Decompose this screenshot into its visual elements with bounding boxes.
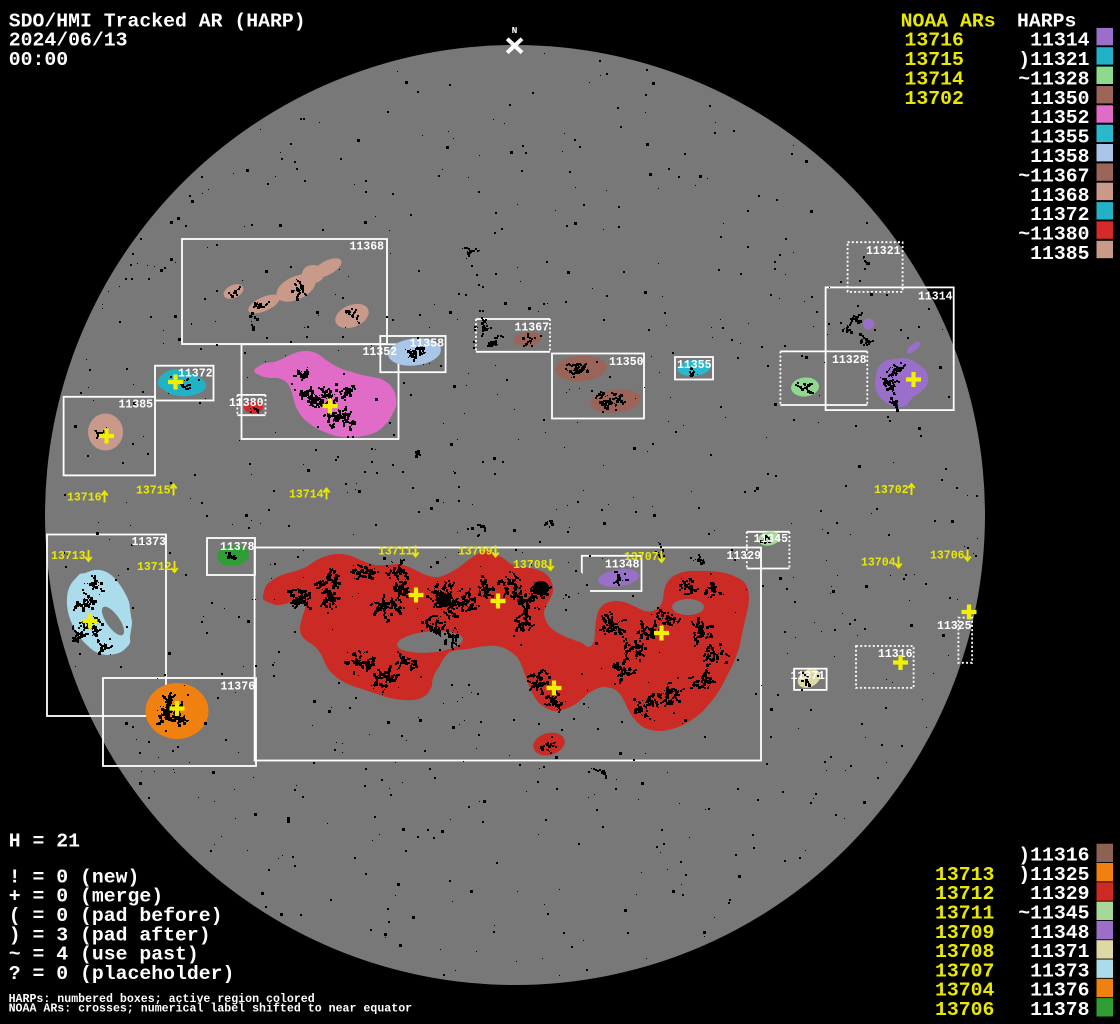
svg-text:13714: 13714: [289, 489, 324, 502]
svg-text:13713: 13713: [51, 550, 86, 563]
svg-text:H = 21: H = 21: [9, 830, 80, 852]
svg-text:11352: 11352: [362, 346, 397, 359]
svg-text:13715: 13715: [136, 485, 171, 498]
svg-text:? = 0 (placeholder): ? = 0 (placeholder): [9, 963, 235, 985]
svg-text:11355: 11355: [677, 359, 712, 372]
svg-text:11380: 11380: [229, 397, 264, 410]
svg-text:11328: 11328: [832, 354, 867, 367]
svg-text:11314: 11314: [918, 291, 953, 304]
svg-text:13707: 13707: [624, 551, 659, 564]
svg-text:11373: 11373: [131, 536, 166, 549]
svg-text:13702: 13702: [905, 88, 964, 110]
svg-text:13712: 13712: [137, 561, 172, 574]
svg-text:11376: 11376: [220, 681, 255, 694]
svg-text:11378: 11378: [1030, 999, 1089, 1021]
svg-text:13708: 13708: [513, 559, 548, 572]
svg-text:11368: 11368: [349, 241, 384, 254]
svg-text:13711: 13711: [378, 546, 413, 559]
svg-text:13706: 13706: [930, 550, 965, 563]
svg-text:11321: 11321: [866, 245, 901, 258]
svg-text:11325: 11325: [937, 620, 972, 633]
svg-text:11385: 11385: [1030, 243, 1089, 265]
svg-text:11385: 11385: [118, 399, 153, 412]
svg-text:11367: 11367: [514, 322, 549, 335]
svg-text:13716: 13716: [67, 492, 102, 505]
svg-text:13706: 13706: [935, 999, 994, 1021]
svg-text:11345: 11345: [753, 533, 788, 546]
svg-text:13704: 13704: [861, 557, 896, 570]
svg-text:11371: 11371: [790, 670, 825, 683]
svg-text:11316: 11316: [878, 648, 913, 661]
svg-text:00:00: 00:00: [9, 49, 68, 71]
svg-text:11350: 11350: [609, 356, 644, 369]
svg-text:11358: 11358: [409, 338, 444, 351]
svg-text:11378: 11378: [220, 541, 255, 554]
svg-text:13702: 13702: [874, 484, 909, 497]
svg-text:NOAA ARs: crosses; numerical l: NOAA ARs: crosses; numerical label shift…: [9, 1003, 413, 1016]
svg-text:N: N: [512, 25, 518, 36]
svg-text:11329: 11329: [726, 550, 761, 563]
svg-text:11372: 11372: [178, 367, 213, 380]
svg-text:13709: 13709: [458, 546, 493, 559]
